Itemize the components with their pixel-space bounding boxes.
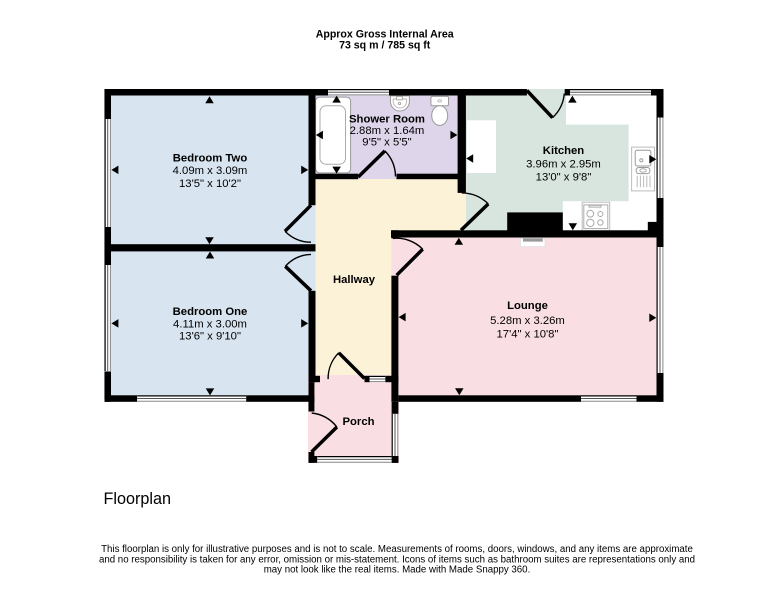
svg-text:2.88m x 1.64m: 2.88m x 1.64m (350, 125, 425, 137)
svg-text:4.11m x 3.00m: 4.11m x 3.00m (173, 319, 247, 331)
svg-text:Lounge: Lounge (507, 300, 548, 312)
svg-text:may not look like the real ite: may not look like the real items. Made w… (264, 565, 531, 576)
svg-text:Bedroom One: Bedroom One (173, 306, 248, 318)
svg-text:Bedroom Two: Bedroom Two (173, 153, 248, 165)
svg-text:4.09m x 3.09m: 4.09m x 3.09m (173, 165, 248, 177)
svg-text:9'5" x 5'5": 9'5" x 5'5" (362, 137, 411, 149)
svg-text:Shower Room: Shower Room (349, 113, 425, 125)
svg-text:Floorplan: Floorplan (104, 490, 172, 508)
svg-text:17'4" x 10'8": 17'4" x 10'8" (497, 328, 559, 340)
svg-text:73 sq m / 785 sq ft: 73 sq m / 785 sq ft (339, 39, 431, 51)
svg-text:3.96m x 2.95m: 3.96m x 2.95m (526, 158, 601, 170)
svg-text:and no responsibility is taken: and no responsibility is taken for any e… (99, 554, 695, 565)
svg-text:13'5" x 10'2": 13'5" x 10'2" (179, 178, 241, 190)
svg-text:Hallway: Hallway (333, 274, 376, 286)
svg-text:Kitchen: Kitchen (543, 145, 585, 157)
svg-text:Porch: Porch (342, 416, 374, 428)
svg-text:13'6" x 9'10": 13'6" x 9'10" (179, 330, 241, 342)
svg-text:5.28m x 3.26m: 5.28m x 3.26m (490, 315, 565, 327)
svg-text:13'0" x 9'8": 13'0" x 9'8" (536, 172, 592, 184)
